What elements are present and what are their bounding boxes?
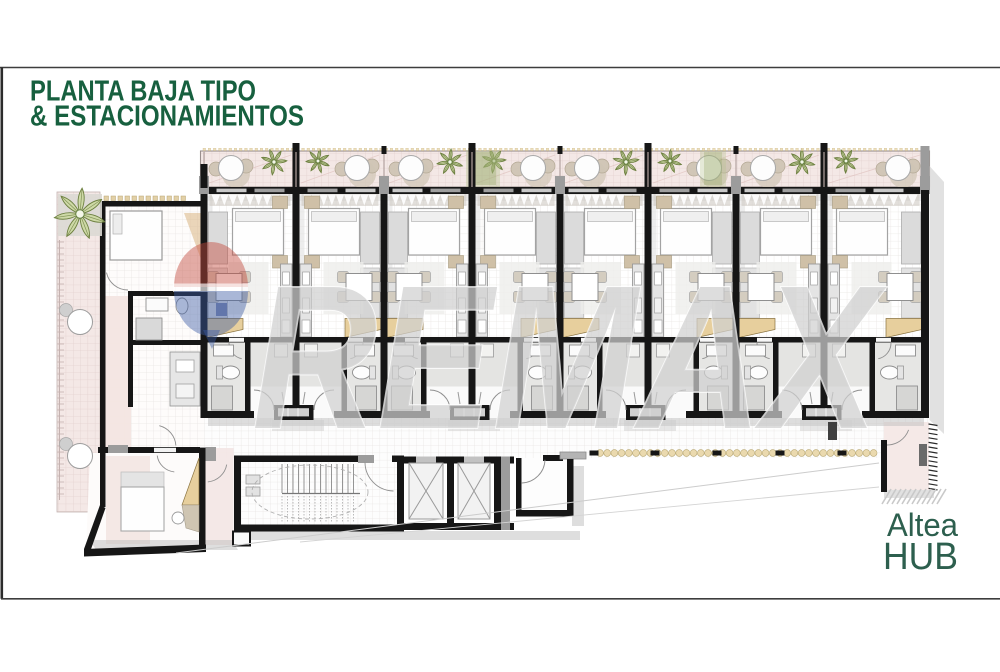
svg-text:& ESTACIONAMIENTOS: & ESTACIONAMIENTOS bbox=[30, 101, 304, 133]
svg-text:REMAX: REMAX bbox=[252, 243, 887, 472]
svg-text:HUB: HUB bbox=[883, 536, 958, 578]
